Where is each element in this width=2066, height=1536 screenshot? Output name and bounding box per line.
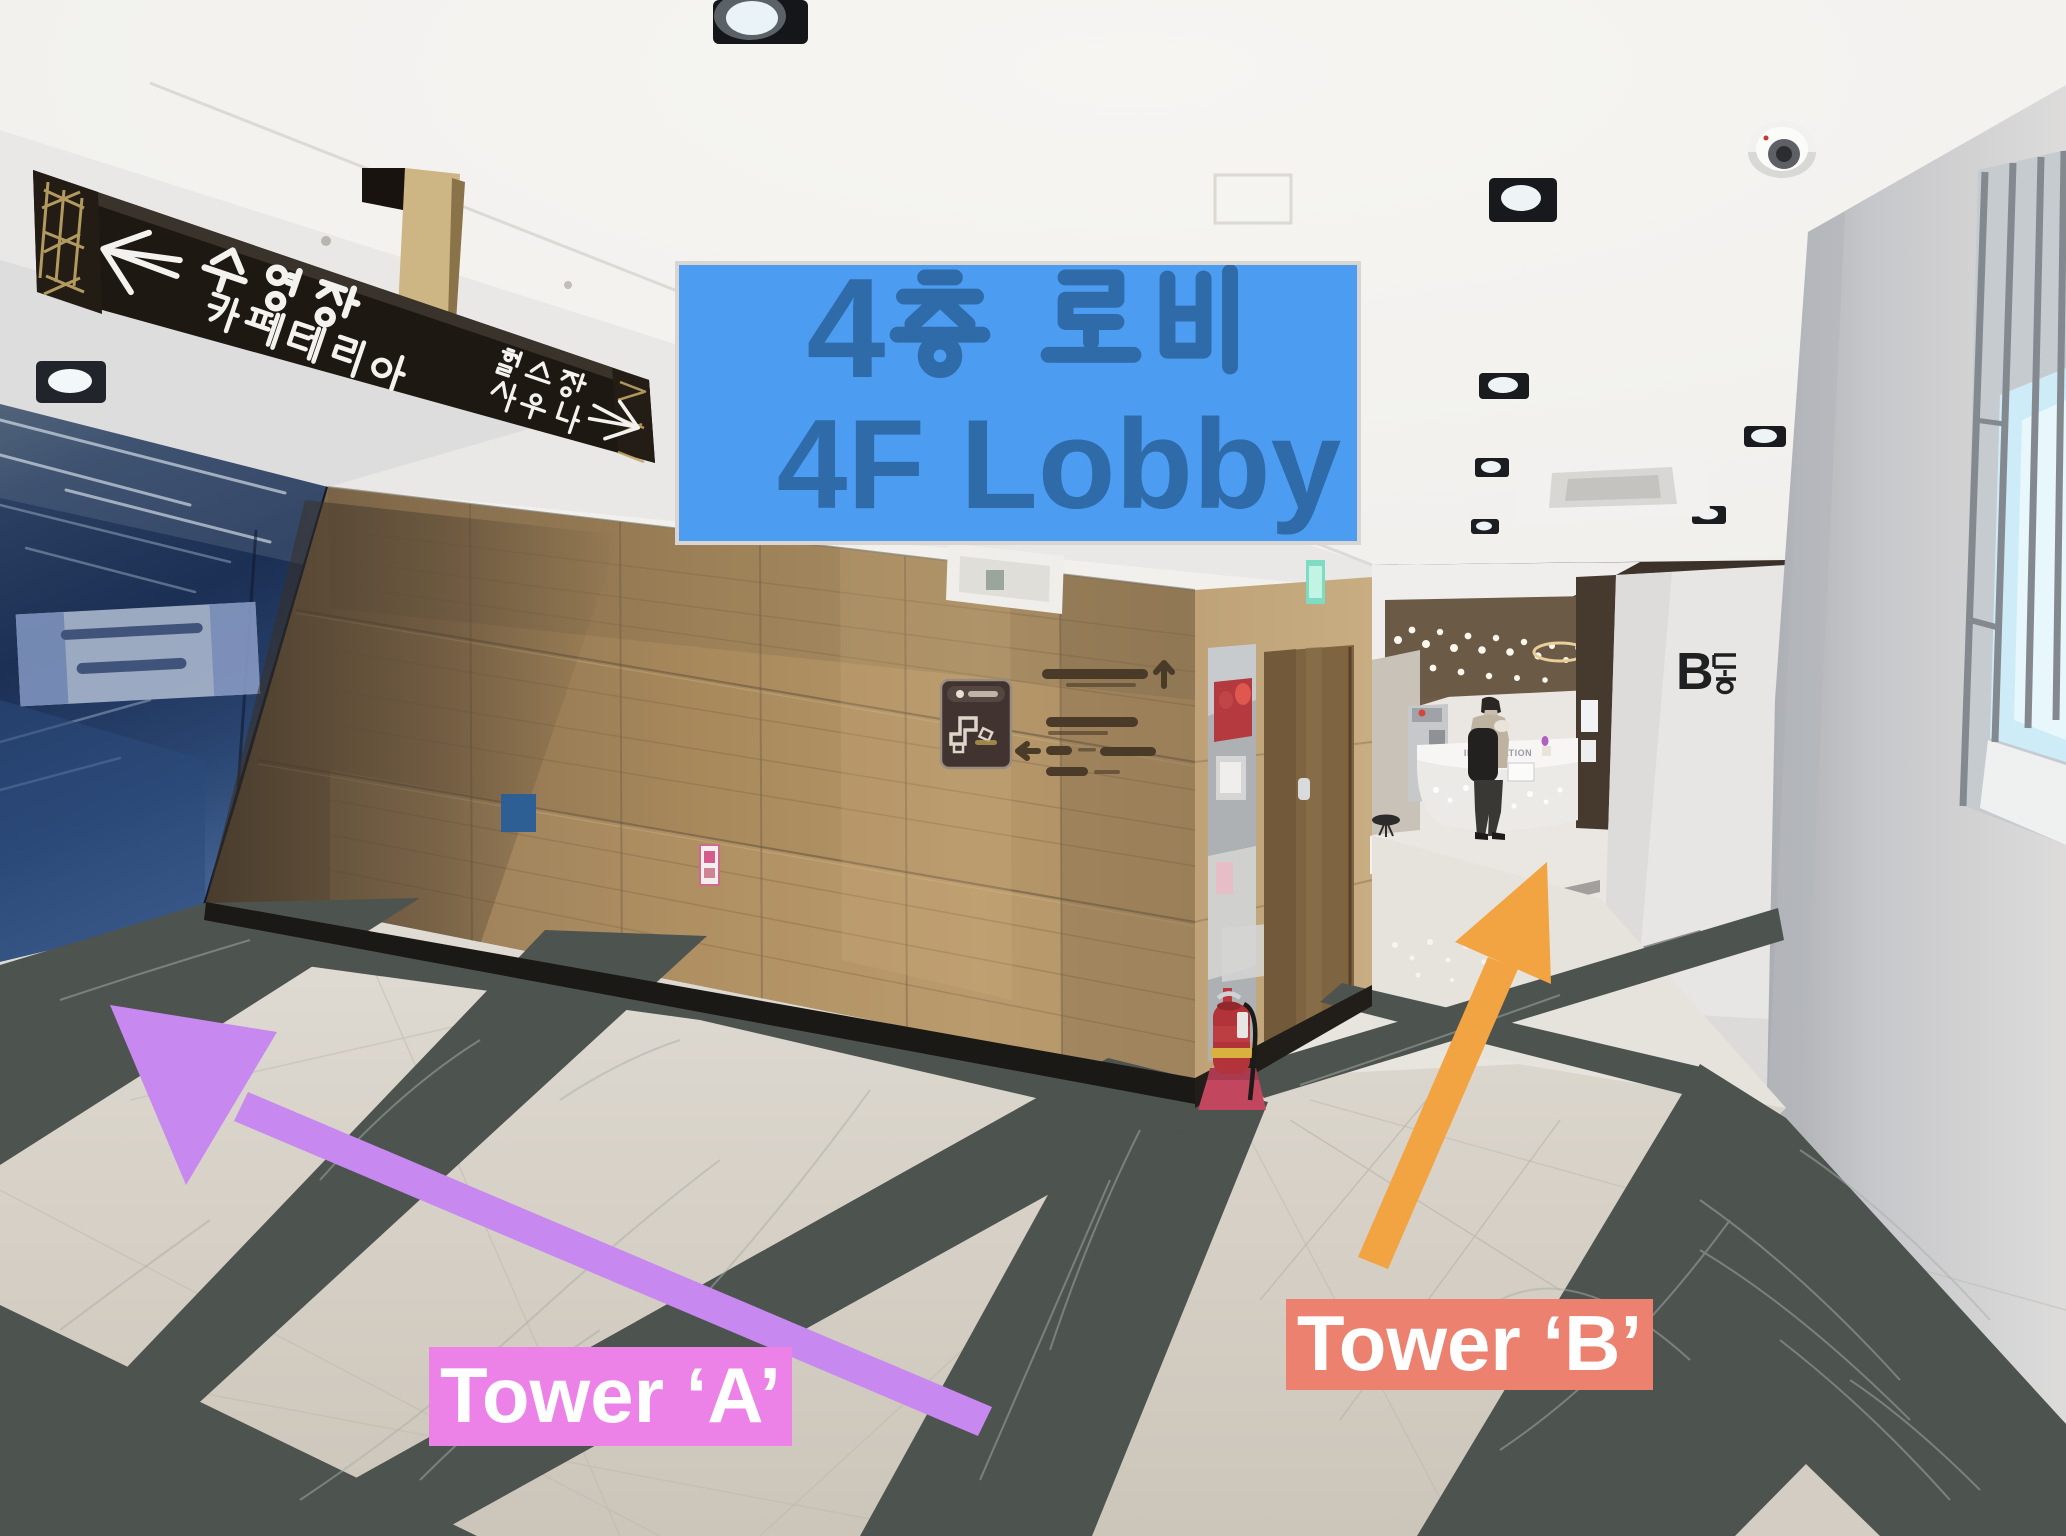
svg-text:4: 4 (807, 265, 886, 408)
svg-text:B: B (1676, 643, 1714, 701)
svg-text:4F Lobby: 4F Lobby (777, 393, 1341, 535)
